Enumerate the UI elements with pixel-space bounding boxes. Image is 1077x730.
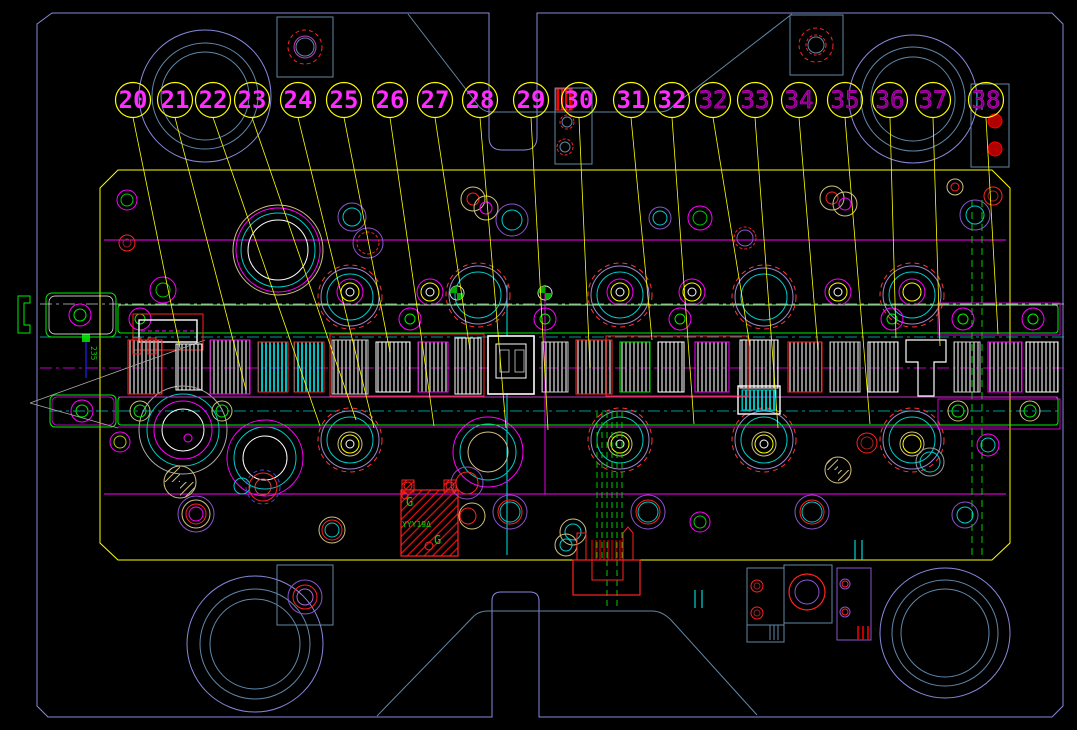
bottom-features	[401, 412, 871, 642]
annotation-text: 235	[89, 346, 98, 361]
balloon-number: 24	[284, 86, 313, 114]
balloon-number: 28	[466, 86, 495, 114]
station-comb	[1026, 342, 1058, 392]
balloon-leader-line	[133, 118, 180, 349]
station-comb	[376, 342, 410, 392]
station-comb	[695, 342, 729, 392]
station-comb	[576, 340, 612, 394]
annotation-text: G	[434, 533, 441, 547]
balloon-number: 29	[517, 86, 546, 114]
balloon-30: 30	[562, 83, 597, 369]
balloon-27: 27	[418, 83, 471, 351]
balloon-number: 23	[238, 86, 267, 114]
station-comb	[294, 342, 324, 392]
balloon-34: 34	[782, 83, 819, 351]
balloon-leader-line	[799, 118, 818, 351]
station-comb	[788, 342, 822, 392]
balloon-number: 36	[876, 86, 905, 114]
balloon-number: 27	[421, 86, 450, 114]
station-comb	[455, 338, 481, 394]
balloon-number: 37	[919, 86, 948, 114]
station-comb	[954, 342, 980, 392]
balloon-leader-line	[933, 118, 940, 347]
balloon-number: 22	[199, 86, 228, 114]
station-comb	[176, 344, 202, 390]
station-comb	[830, 342, 860, 392]
strip-rails	[18, 293, 1060, 429]
station-comb	[620, 342, 650, 392]
balloon-number: 34	[785, 86, 814, 114]
drawing-canvas[interactable]: GΥΥΥ19ΔG235 2021222324252627282930313232…	[0, 0, 1077, 730]
balloon-number: 20	[119, 86, 148, 114]
balloon-number: 26	[376, 86, 405, 114]
balloon-number: 25	[330, 86, 359, 114]
station-comb	[258, 342, 288, 392]
annotation-text: ΥΥΥ19Δ	[402, 520, 431, 529]
station-comb	[868, 342, 898, 392]
balloon-leader-line	[435, 118, 470, 351]
balloon-number: 33	[741, 86, 770, 114]
stations	[128, 314, 1058, 414]
balloon-25: 25	[327, 83, 391, 353]
balloon-leader-line	[631, 118, 652, 341]
balloon-number: 32	[658, 86, 687, 114]
station-comb	[742, 390, 776, 410]
balloon-number: 35	[831, 86, 860, 114]
balloon-leader-line	[713, 118, 750, 347]
station-comb	[210, 340, 250, 394]
station-comb	[988, 342, 1022, 392]
balloon-number: 30	[565, 86, 594, 114]
annotation-text: G	[406, 495, 413, 509]
station-comb	[418, 342, 448, 392]
balloon-number: 32	[699, 86, 728, 114]
balloon-number: 31	[617, 86, 646, 114]
balloon-number: 21	[161, 86, 190, 114]
balloon-32: 32	[696, 83, 751, 347]
balloon-leader-line	[344, 118, 390, 353]
balloon-leader-line	[579, 118, 590, 369]
station-comb	[658, 342, 684, 392]
balloon-37: 37	[916, 83, 951, 347]
balloon-36: 36	[873, 83, 908, 339]
balloon-number: 38	[972, 86, 1001, 114]
cad-viewport: GΥΥΥ19ΔG235 2021222324252627282930313232…	[0, 0, 1077, 730]
